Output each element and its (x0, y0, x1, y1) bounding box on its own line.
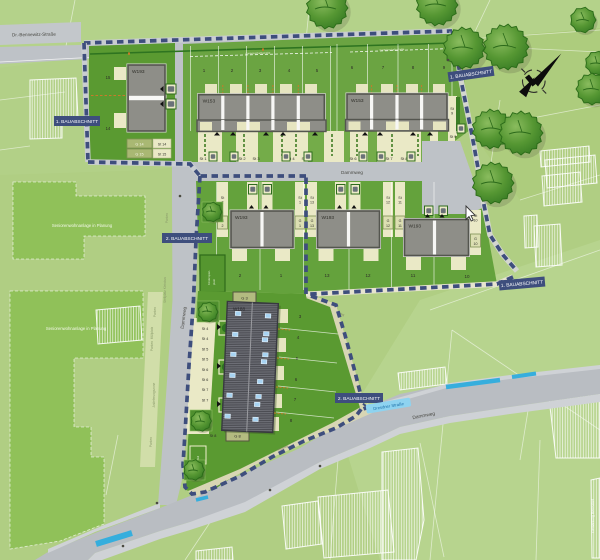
svg-text:1: 1 (299, 224, 301, 228)
svg-text:10: 10 (474, 242, 478, 246)
svg-text:G 15: G 15 (135, 153, 143, 157)
svg-text:11: 11 (398, 224, 402, 228)
svg-text:W193: W193 (132, 69, 145, 75)
svg-text:St 15: St 15 (158, 153, 166, 157)
svg-text:10: 10 (474, 219, 478, 223)
svg-text:St 4: St 4 (202, 327, 209, 331)
svg-text:9: 9 (451, 112, 453, 116)
svg-text:Müllplatz: Müllplatz (150, 326, 154, 339)
svg-text:St 5: St 5 (202, 347, 209, 351)
svg-text:W153: W153 (203, 99, 216, 105)
svg-text:Gemeinschaftsstraße: Gemeinschaftsstraße (246, 51, 271, 56)
svg-text:St: St (398, 196, 401, 200)
svg-text:1. BAUABSCHNITT: 1. BAUABSCHNITT (56, 119, 98, 125)
svg-text:1: 1 (299, 201, 301, 205)
svg-text:W153: W153 (351, 98, 364, 104)
svg-text:2. BAUABSCHNITT: 2. BAUABSCHNITT (338, 396, 380, 402)
svg-text:St: St (221, 196, 224, 200)
svg-text:G: G (399, 219, 402, 223)
svg-text:St 4: St 4 (202, 337, 209, 341)
svg-text:G 14: G 14 (135, 143, 143, 147)
svg-text:W193: W193 (235, 215, 248, 221)
svg-text:platz: platz (212, 278, 216, 285)
svg-text:St 14: St 14 (158, 143, 166, 147)
svg-text:St: St (386, 196, 389, 200)
svg-text:Kinderspiel-: Kinderspiel- (207, 270, 211, 285)
svg-text:Parken: Parken (165, 213, 169, 223)
svg-text:W188: W188 (233, 307, 245, 312)
svg-text:11: 11 (398, 201, 402, 205)
svg-text:12: 12 (386, 201, 390, 205)
svg-text:W193: W193 (322, 215, 335, 221)
svg-text:St 2: St 2 (238, 156, 246, 161)
svg-text:15: 15 (106, 75, 111, 80)
svg-text:St 6: St 6 (202, 378, 209, 382)
svg-text:Dr.-Bennewitz-Straße: Dr.-Bennewitz-Straße (12, 32, 56, 38)
svg-text:13: 13 (324, 273, 330, 278)
svg-text:St 8: St 8 (210, 434, 217, 438)
svg-text:G: G (474, 237, 477, 241)
svg-text:Seniorenwohnanlage in Planung: Seniorenwohnanlage in Planung (52, 223, 113, 228)
svg-text:St 3: St 3 (252, 156, 260, 161)
svg-text:10: 10 (464, 274, 470, 279)
svg-text:G 8: G 8 (234, 434, 241, 439)
svg-text:St 9: St 9 (450, 135, 457, 139)
svg-text:11: 11 (411, 273, 416, 278)
svg-text:W193: W193 (409, 224, 422, 230)
svg-text:St 7: St 7 (202, 398, 209, 402)
svg-text:St 5: St 5 (202, 358, 209, 362)
svg-text:Parken: Parken (153, 307, 157, 317)
svg-text:St: St (310, 196, 313, 200)
svg-text:12: 12 (365, 273, 371, 278)
svg-text:2. BAUABSCHNITT: 2. BAUABSCHNITT (166, 236, 208, 242)
svg-text:Anlieferungszone: Anlieferungszone (152, 382, 156, 407)
svg-text:13: 13 (310, 224, 314, 228)
svg-text:14: 14 (106, 126, 111, 131)
svg-text:G: G (311, 219, 314, 223)
svg-text:Stellplatz Kleinbus: Stellplatz Kleinbus (163, 277, 167, 303)
svg-text:St 7: St 7 (202, 388, 209, 392)
svg-text:G 3: G 3 (241, 296, 248, 301)
svg-text:St 1: St 1 (199, 156, 207, 161)
svg-text:St: St (298, 196, 301, 200)
svg-text:Gemarkung Bernsdorf: Gemarkung Bernsdorf (591, 499, 595, 532)
svg-text:13: 13 (310, 201, 314, 205)
svg-text:St 6: St 6 (349, 156, 357, 161)
svg-text:Parken: Parken (149, 437, 153, 447)
svg-text:St 7: St 7 (385, 156, 393, 161)
svg-text:St 6: St 6 (202, 368, 209, 372)
svg-text:G: G (387, 219, 390, 223)
svg-text:2: 2 (222, 224, 224, 228)
svg-text:G: G (299, 219, 302, 223)
svg-text:Parken: Parken (150, 341, 154, 351)
svg-text:12: 12 (386, 224, 390, 228)
svg-text:Dammweg: Dammweg (341, 170, 363, 175)
